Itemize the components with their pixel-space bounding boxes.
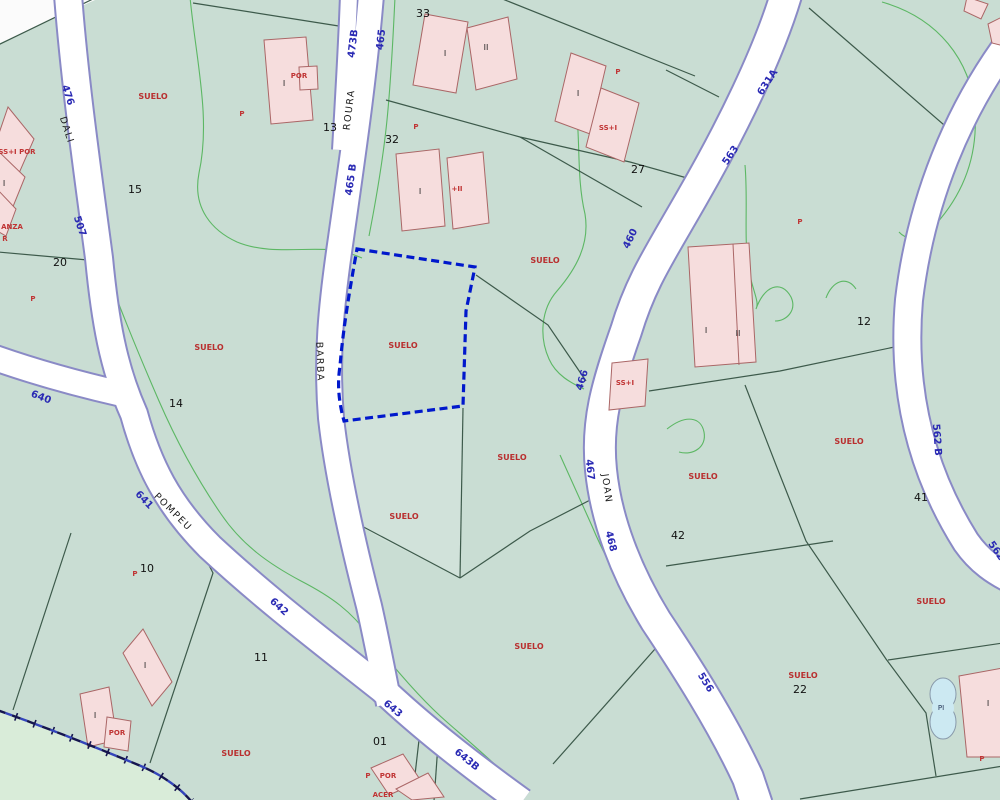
building-use-label: ACER [373, 791, 394, 799]
parcel-number-label: 33 [416, 7, 430, 20]
building-floor-label: I [144, 661, 146, 670]
pool-labels: PI [938, 704, 944, 712]
building-use-label: P [132, 570, 137, 578]
suelo-label: SUELO [514, 642, 544, 651]
map-canvas[interactable]: 476507473B465465 B460466467468563631A640… [0, 0, 1000, 800]
suelo-label: SUELO [530, 256, 560, 265]
building-use-label: POR [380, 772, 397, 780]
building-use-label: SS+I [599, 124, 617, 132]
parcel-number-label: 13 [323, 121, 337, 134]
building-use-label: POR [291, 72, 308, 80]
building-use-label: POR [109, 729, 126, 737]
building-floor-label: II [736, 329, 741, 338]
building-use-label: +II [451, 185, 462, 193]
building [467, 17, 517, 90]
building-floor-label: I [3, 179, 5, 188]
road-number-label: 562 B [930, 423, 943, 456]
building-use-label: ANZA [1, 223, 23, 231]
suelo-label: SUELO [138, 92, 168, 101]
building [688, 243, 756, 367]
parcel-number-label: 42 [671, 529, 685, 542]
parcel-number-label: 20 [53, 256, 67, 269]
building-floor-label: I [444, 49, 446, 58]
road-number-label: 467 [583, 459, 596, 481]
building-floor-label: I [419, 187, 421, 196]
parcel-number-label: 22 [793, 683, 807, 696]
suelo-label: SUELO [688, 472, 718, 481]
parcel-number-label: 32 [385, 133, 399, 146]
parcel-number-label: 10 [140, 562, 154, 575]
parcel-number-label: 14 [169, 397, 183, 410]
building-floor-label: I [705, 326, 707, 335]
suelo-label: SUELO [497, 453, 527, 462]
building-use-label: P [413, 123, 418, 131]
building-use-label: P [239, 110, 244, 118]
building-floor-label: II [484, 43, 489, 52]
suelo-label: SUELO [834, 437, 864, 446]
parcel-number-label: 15 [128, 183, 142, 196]
building-use-label: SS+I [616, 379, 634, 387]
building-floor-label: I [283, 79, 285, 88]
building-use-label: P [979, 755, 984, 763]
parcel-number-label: 11 [254, 651, 268, 664]
parcel-number-label: 41 [914, 491, 928, 504]
suelo-label: SUELO [788, 671, 818, 680]
suelo-label: SUELO [916, 597, 946, 606]
suelo-label: SUELO [194, 343, 224, 352]
building-use-label: P [797, 218, 802, 226]
building-use-label: P [615, 68, 620, 76]
parcel-number-label: 12 [857, 315, 871, 328]
building-use-label: P [30, 295, 35, 303]
building-floor-label: I [94, 711, 96, 720]
building-floor-label: I [987, 699, 989, 708]
road-name-label: BARBA [313, 342, 325, 383]
building-floor-label: I [577, 89, 579, 98]
pool-label: PI [938, 704, 944, 712]
cadastral-map-window: 476507473B465465 B460466467468563631A640… [0, 0, 1000, 800]
building-use-label: R [2, 235, 8, 243]
parcel-number-label: 27 [631, 163, 645, 176]
suelo-label: SUELO [389, 512, 419, 521]
building-use-label: P [365, 772, 370, 780]
suelo-label: SUELO [388, 341, 418, 350]
suelo-label: SUELO [221, 749, 251, 758]
parcel-number-label: 01 [373, 735, 387, 748]
building-use-label: SS+I POR [0, 148, 36, 156]
